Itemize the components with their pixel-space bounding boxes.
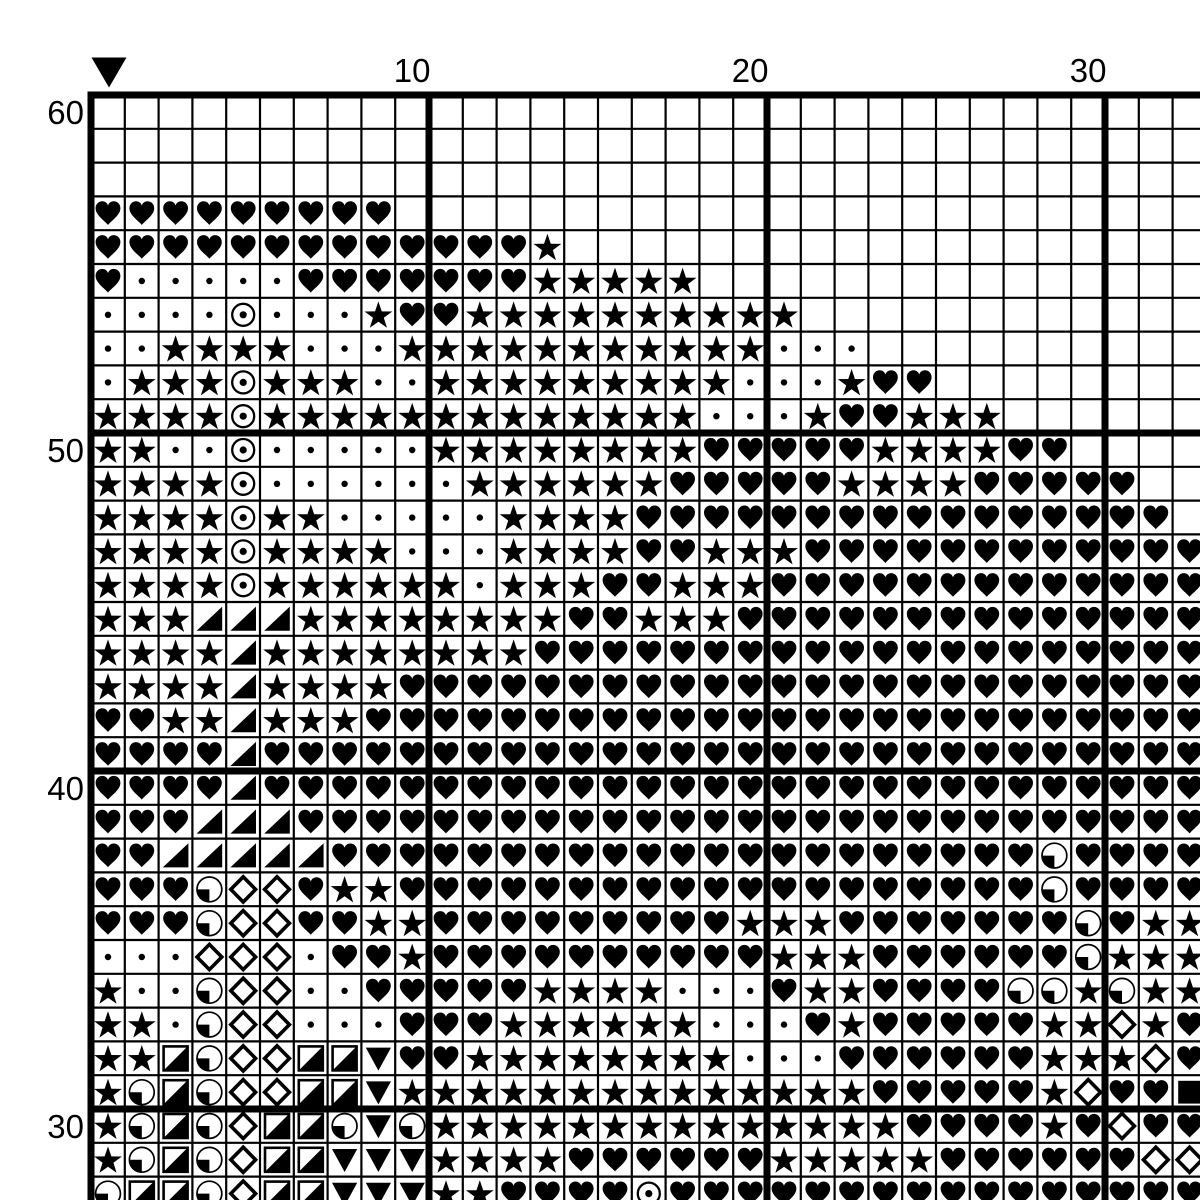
row-label-30: 30 xyxy=(47,1108,84,1145)
dot-symbol xyxy=(375,447,381,453)
dot-symbol xyxy=(308,988,314,994)
dot-symbol xyxy=(477,548,483,554)
dot-symbol xyxy=(477,514,483,520)
dot-symbol xyxy=(747,1021,753,1027)
dot-symbol xyxy=(308,481,314,487)
dot-symbol xyxy=(105,954,111,960)
dot-symbol xyxy=(341,345,347,351)
dot-symbol xyxy=(172,988,178,994)
dot-symbol xyxy=(713,1021,719,1027)
dot-symbol xyxy=(815,379,821,385)
dot-symbol xyxy=(747,379,753,385)
dot-symbol xyxy=(409,481,415,487)
dot-symbol xyxy=(172,312,178,318)
dot-symbol xyxy=(308,1021,314,1027)
dot-symbol xyxy=(375,1021,381,1027)
dot-symbol xyxy=(443,481,449,487)
row-label-50: 50 xyxy=(47,432,84,469)
dot-symbol xyxy=(713,413,719,419)
dot-symbol xyxy=(815,345,821,351)
dot-symbol xyxy=(274,447,280,453)
dot-symbol xyxy=(375,345,381,351)
dot-symbol xyxy=(308,954,314,960)
dot-symbol xyxy=(781,1055,787,1061)
dot-symbol xyxy=(713,988,719,994)
row-label-60: 60 xyxy=(47,94,84,131)
dot-symbol xyxy=(781,379,787,385)
dot-symbol xyxy=(375,514,381,520)
dot-symbol xyxy=(341,1021,347,1027)
dot-symbol xyxy=(747,988,753,994)
dot-symbol xyxy=(341,988,347,994)
dot-symbol xyxy=(781,1021,787,1027)
row-label-40: 40 xyxy=(47,770,84,807)
dot-symbol xyxy=(172,1021,178,1027)
dot-symbol xyxy=(781,345,787,351)
dot-symbol xyxy=(206,447,212,453)
dot-symbol xyxy=(240,278,246,284)
dot-symbol xyxy=(341,481,347,487)
column-label-10: 10 xyxy=(394,52,431,89)
pattern-grid-svg: 10203060504030 xyxy=(0,0,1200,1200)
dot-symbol xyxy=(409,514,415,520)
dot-symbol xyxy=(341,312,347,318)
column-label-20: 20 xyxy=(732,52,769,89)
dot-symbol xyxy=(409,447,415,453)
dot-symbol xyxy=(477,582,483,588)
dot-symbol xyxy=(105,345,111,351)
dot-symbol xyxy=(409,379,415,385)
dot-symbol xyxy=(139,345,145,351)
dot-symbol xyxy=(206,312,212,318)
dot-symbol xyxy=(747,1055,753,1061)
dot-symbol xyxy=(679,988,685,994)
dot-symbol xyxy=(172,447,178,453)
dot-symbol xyxy=(105,312,111,318)
column-label-30: 30 xyxy=(1070,52,1107,89)
dot-symbol xyxy=(341,447,347,453)
dot-symbol xyxy=(815,1055,821,1061)
dot-symbol xyxy=(409,548,415,554)
dot-symbol xyxy=(375,481,381,487)
dot-symbol xyxy=(747,413,753,419)
dot-symbol xyxy=(274,278,280,284)
dot-symbol xyxy=(443,548,449,554)
dot-symbol xyxy=(105,379,111,385)
pattern-grid: 10203060504030 xyxy=(0,0,1200,1200)
dot-symbol xyxy=(443,514,449,520)
dot-symbol xyxy=(308,312,314,318)
dot-symbol xyxy=(139,954,145,960)
dot-symbol xyxy=(341,514,347,520)
dot-symbol xyxy=(172,954,178,960)
dot-symbol xyxy=(274,312,280,318)
dot-symbol xyxy=(274,481,280,487)
dot-symbol xyxy=(308,345,314,351)
solid-square-symbol xyxy=(1178,1081,1200,1104)
dot-symbol xyxy=(781,413,787,419)
cross-stitch-pattern-chart: 10203060504030 xyxy=(0,0,1200,1200)
dot-symbol xyxy=(139,312,145,318)
dot-symbol xyxy=(308,447,314,453)
dot-symbol xyxy=(375,379,381,385)
dot-symbol xyxy=(139,988,145,994)
dot-symbol xyxy=(206,278,212,284)
dot-symbol xyxy=(139,278,145,284)
dot-symbol xyxy=(172,278,178,284)
dot-symbol xyxy=(848,345,854,351)
